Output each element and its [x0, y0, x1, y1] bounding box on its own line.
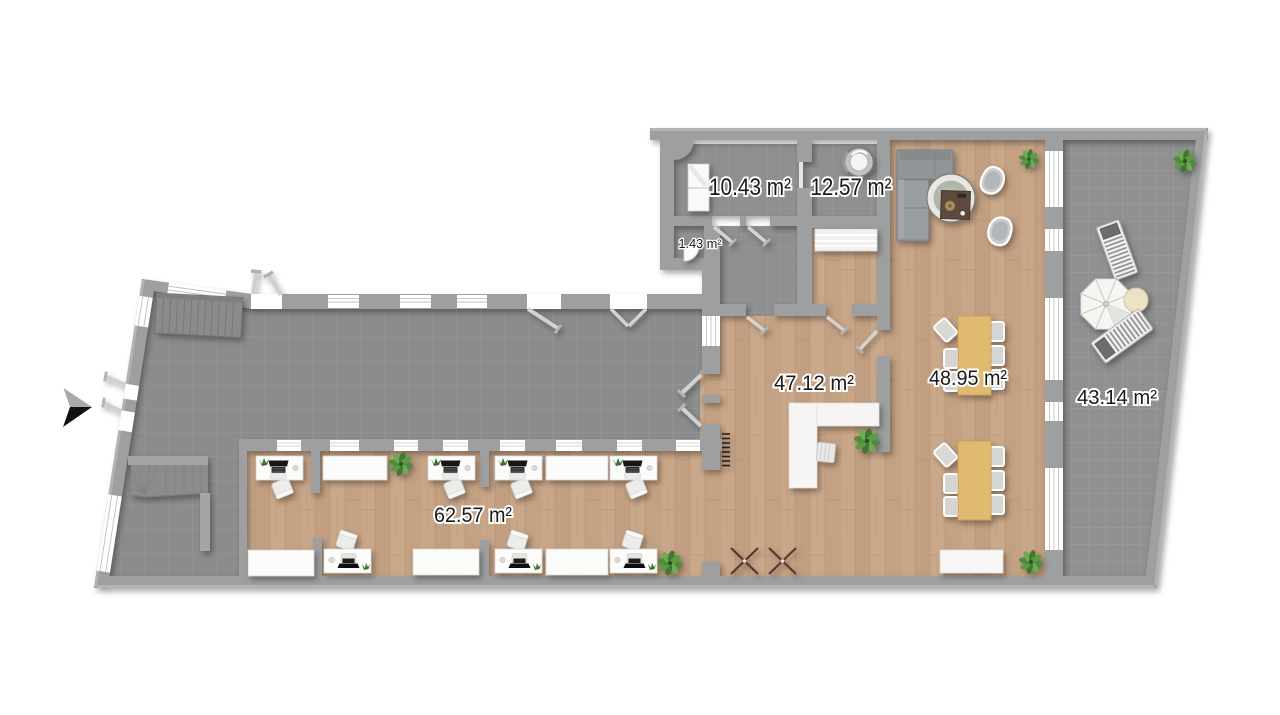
svg-text:10.43 m²: 10.43 m²	[709, 174, 791, 201]
svg-text:47.12 m²: 47.12 m²	[774, 372, 854, 395]
svg-text:62.57 m²: 62.57 m²	[434, 504, 512, 527]
svg-text:48.95 m²: 48.95 m²	[929, 367, 1007, 390]
svg-text:12.57 m²: 12.57 m²	[811, 174, 892, 201]
svg-text:1.43 m²: 1.43 m²	[679, 236, 723, 251]
svg-text:43.14 m²: 43.14 m²	[1077, 387, 1157, 409]
